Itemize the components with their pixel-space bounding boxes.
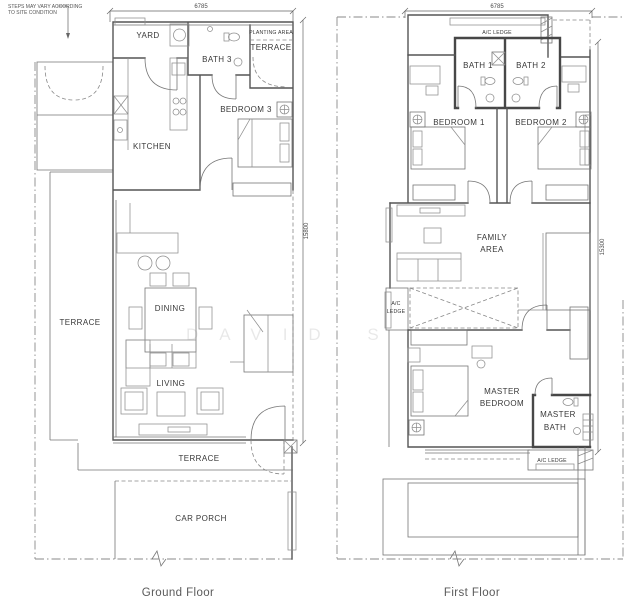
bedroom1-bed <box>411 127 465 169</box>
master-wardrobe <box>411 330 467 345</box>
room-label-yard: YARD <box>136 31 159 40</box>
kitchen-counter <box>114 58 187 150</box>
master-bed <box>411 366 468 416</box>
note-leader <box>57 6 68 33</box>
stairs-first <box>518 233 590 310</box>
family-sofa <box>397 253 461 281</box>
hall-wardrobe <box>570 307 588 359</box>
entrance-porch <box>37 62 113 170</box>
bedroom1-ac-unit <box>410 112 425 127</box>
family-side-table <box>424 228 441 243</box>
break-symbol-first <box>450 551 464 566</box>
site-note-line2: TO SITE CONDITION <box>8 10 57 16</box>
note-arrow <box>66 33 70 39</box>
bedroom2-bed <box>538 127 591 169</box>
first-floor-plan: 6785 15300 A/C LEDGE BATH 1 BATH 2 BEDRO… <box>337 4 623 599</box>
bedroom2-ac-unit <box>576 112 591 127</box>
master-bath-door <box>535 378 552 395</box>
ground-floor-title: Ground Floor <box>142 587 215 599</box>
room-label-ac-ledge-left-2: LEDGE <box>387 309 406 315</box>
room-label-ac-ledge-left-1: A/C <box>391 301 400 307</box>
first-floor-title: First Floor <box>444 587 500 599</box>
lot-boundary-first <box>337 17 623 559</box>
room-label-living: LIVING <box>157 379 186 388</box>
walls <box>113 22 293 559</box>
bedroom3-bed <box>238 119 292 167</box>
first-dim-top: 6785 <box>490 4 504 10</box>
room-label-bath3: BATH 3 <box>202 55 232 64</box>
master-bath-walls <box>533 395 590 447</box>
bath1-fixtures <box>481 77 495 102</box>
floor-plan-drawing: DAVID S <box>0 0 630 600</box>
floor-plan-page: DAVID S <box>0 0 630 600</box>
family-window <box>386 208 392 242</box>
bath2-fixtures <box>512 77 528 102</box>
entrance-column <box>284 440 297 453</box>
coffee-table <box>157 392 185 416</box>
master-side-table <box>408 348 420 362</box>
doors <box>145 57 287 474</box>
break-symbol <box>152 551 166 566</box>
master-ac-unit <box>409 420 424 435</box>
first-dim-side: 15300 <box>600 238 606 255</box>
room-label-family-1: FAMILY <box>477 233 508 242</box>
walls-top <box>408 15 590 447</box>
room-label-ac-ledge-top: A/C LEDGE <box>482 30 512 36</box>
room-label-master-bath-2: BATH <box>544 423 566 432</box>
bedroom-doors <box>468 181 532 203</box>
bedroom2-window-strip <box>546 185 588 200</box>
dining-table <box>129 273 212 366</box>
master-bath-fixtures <box>563 398 593 440</box>
ac-ledge-top-strip <box>450 18 545 25</box>
bath-doors <box>458 86 557 108</box>
room-label-dining: DINING <box>155 304 185 313</box>
ground-dimensions <box>107 8 306 446</box>
room-label-car-porch: CAR PORCH <box>175 514 227 523</box>
dry-kitchen-counter <box>117 203 178 270</box>
room-label-master-2: BEDROOM <box>480 399 524 408</box>
room-label-kitchen: KITCHEN <box>133 142 171 151</box>
room-label-terrace-top: TERRACE <box>250 43 291 52</box>
bedroom2-desk <box>562 66 586 92</box>
void-opening <box>410 288 518 328</box>
room-label-bath2: BATH 2 <box>516 61 546 70</box>
room-label-master-1: MASTER <box>484 387 520 396</box>
family-tv-cabinet <box>397 205 465 216</box>
duct-shaft <box>492 52 505 65</box>
room-label-bedroom1: BEDROOM 1 <box>433 118 485 127</box>
bedroom1-window-strip <box>413 185 455 200</box>
room-label-family-2: AREA <box>480 245 504 254</box>
bedroom1-desk <box>410 66 440 95</box>
ground-dim-side: 15800 <box>304 222 310 239</box>
room-label-master-bath-1: MASTER <box>540 410 576 419</box>
ground-dim-top: 6785 <box>194 4 208 10</box>
dressing-table <box>472 346 492 368</box>
bedroom3-ac-unit <box>277 102 292 117</box>
room-label-bath1: BATH 1 <box>463 61 493 70</box>
bedroom3-window-strip <box>233 183 291 196</box>
room-label-ac-ledge-bottom: A/C LEDGE <box>537 458 567 464</box>
room-label-bedroom2: BEDROOM 2 <box>515 118 567 127</box>
room-label-planting-area: PLANTING AREA <box>249 30 293 36</box>
room-label-terrace-bottom: TERRACE <box>178 454 219 463</box>
ground-floor-plan: STEPS MAY VARY ACCORDING TO SITE CONDITI… <box>8 4 310 599</box>
washing-machine <box>170 24 189 46</box>
bath-walls <box>455 38 560 108</box>
room-label-bedroom3: BEDROOM 3 <box>220 105 272 114</box>
tv-console <box>139 424 207 435</box>
room-label-terrace-left: TERRACE <box>59 318 100 327</box>
